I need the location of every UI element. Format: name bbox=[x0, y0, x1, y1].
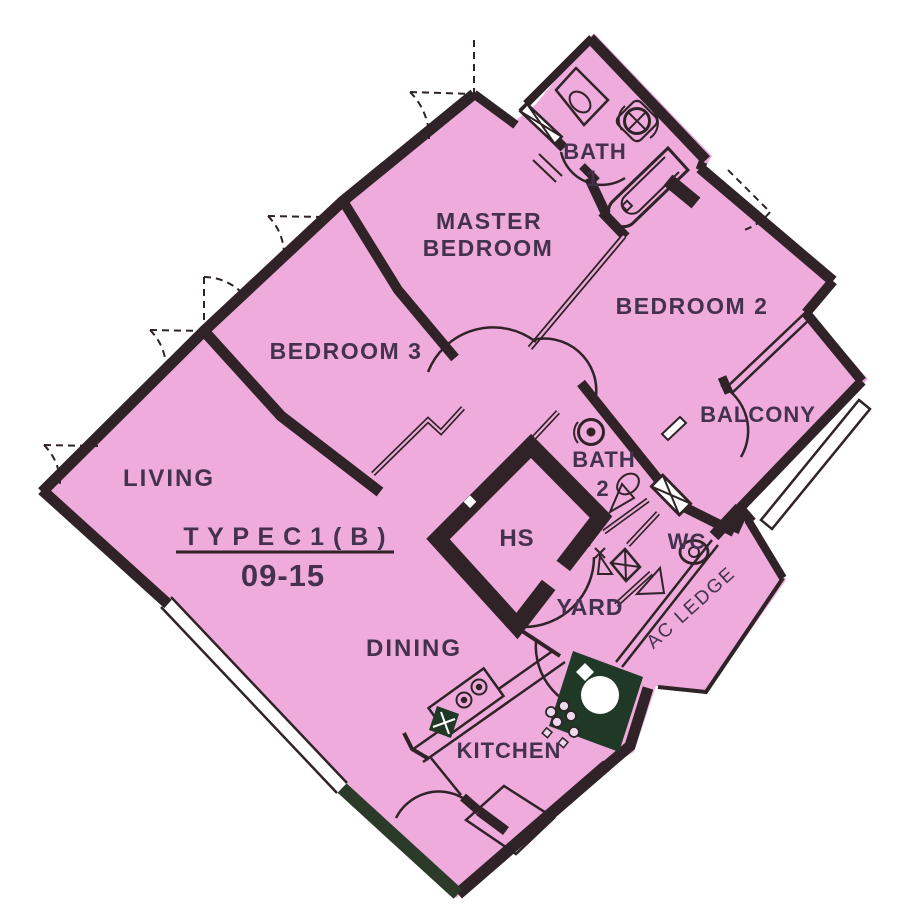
svg-text:BEDROOM 3: BEDROOM 3 bbox=[270, 338, 423, 364]
svg-text:1: 1 bbox=[586, 166, 599, 191]
svg-text:BEDROOM: BEDROOM bbox=[423, 235, 554, 261]
svg-text:WC: WC bbox=[668, 529, 707, 554]
svg-text:BALCONY: BALCONY bbox=[700, 402, 816, 427]
svg-text:BEDROOM 2: BEDROOM 2 bbox=[616, 293, 769, 319]
svg-text:MASTER: MASTER bbox=[436, 208, 542, 234]
svg-text:DINING: DINING bbox=[366, 635, 462, 662]
svg-text:09-15: 09-15 bbox=[241, 558, 325, 593]
svg-text:KITCHEN: KITCHEN bbox=[457, 738, 562, 763]
svg-text:LIVING: LIVING bbox=[123, 465, 215, 492]
svg-text:T Y P E C 1 ( B ): T Y P E C 1 ( B ) bbox=[183, 523, 386, 551]
svg-text:YARD: YARD bbox=[556, 594, 623, 620]
svg-text:2: 2 bbox=[596, 476, 609, 501]
svg-text:BATH: BATH bbox=[572, 447, 635, 472]
svg-text:HS: HS bbox=[499, 525, 534, 552]
svg-text:BATH: BATH bbox=[563, 139, 626, 164]
